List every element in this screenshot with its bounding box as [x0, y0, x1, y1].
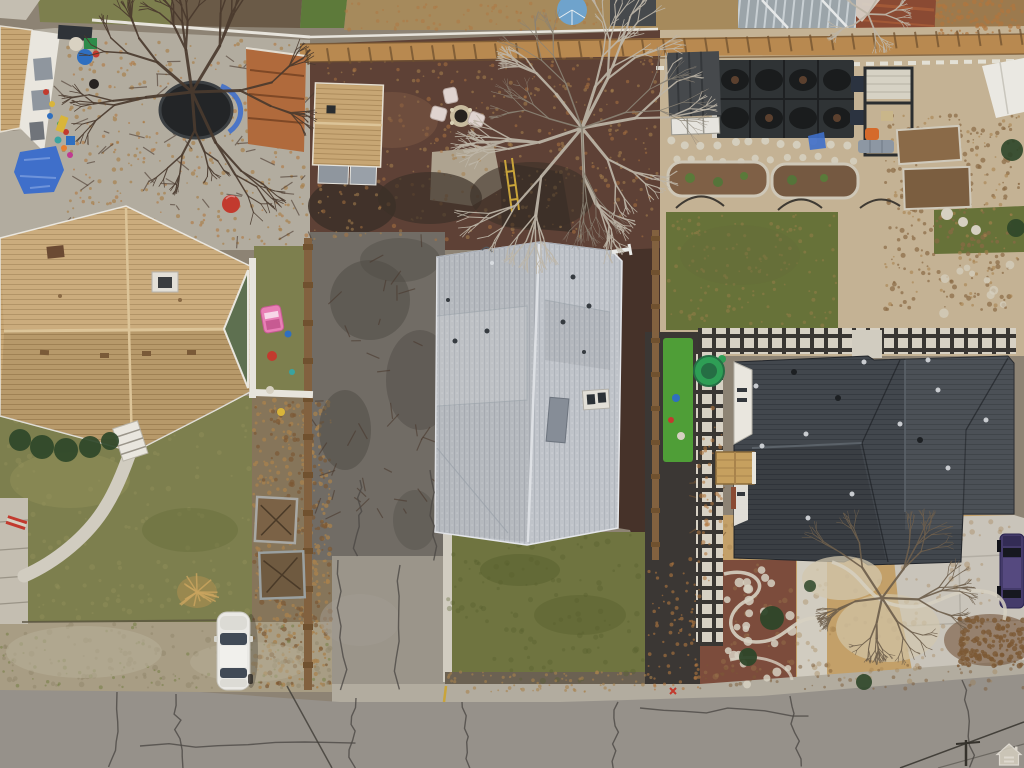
- covered-garden-beds: [712, 60, 854, 150]
- bush: [804, 580, 816, 592]
- white-car: [214, 612, 258, 690]
- garden-box: [255, 497, 297, 543]
- red-dome-toy: [222, 195, 240, 213]
- toy: [266, 386, 274, 394]
- bush: [30, 435, 54, 459]
- bush: [739, 648, 757, 666]
- bush: [101, 432, 119, 450]
- garden-shed: [312, 83, 383, 185]
- patio-chair: [443, 87, 459, 104]
- white-gable: [734, 362, 752, 444]
- top-grass-patch: [300, 0, 347, 28]
- toy: [277, 408, 285, 416]
- chimney: [46, 245, 64, 259]
- window: [33, 57, 53, 80]
- roof-patch: [546, 397, 569, 442]
- downspout: [731, 487, 736, 509]
- center-house-gray-roof: [435, 242, 631, 545]
- toy: [285, 331, 292, 338]
- backyard-shed: [667, 51, 722, 135]
- bush: [79, 436, 101, 458]
- garden-box: [259, 551, 305, 599]
- kids-table: [77, 49, 93, 65]
- sidewalk: [0, 498, 28, 624]
- planting-bed: [772, 164, 858, 198]
- aerial-photo-canvas: [0, 0, 1024, 768]
- bush: [54, 438, 78, 462]
- bush: [9, 429, 31, 451]
- side-mirror: [214, 636, 218, 642]
- bush: [856, 674, 872, 690]
- bush: [760, 606, 784, 630]
- chimney: [582, 389, 609, 410]
- wood-fence-west: [304, 238, 312, 690]
- pink-toy-car: [260, 304, 284, 333]
- patio-table: [881, 111, 893, 121]
- aerial-photo: [0, 0, 1024, 768]
- toy: [267, 351, 277, 361]
- toy: [289, 369, 295, 375]
- orange-chair: [865, 128, 879, 140]
- outdoor-sofa: [858, 140, 894, 153]
- side-mirror: [249, 636, 253, 642]
- turtle-sandbox: [694, 355, 726, 386]
- door: [29, 121, 45, 140]
- wood-deck: [716, 452, 756, 484]
- paver-path-vertical: [696, 354, 723, 646]
